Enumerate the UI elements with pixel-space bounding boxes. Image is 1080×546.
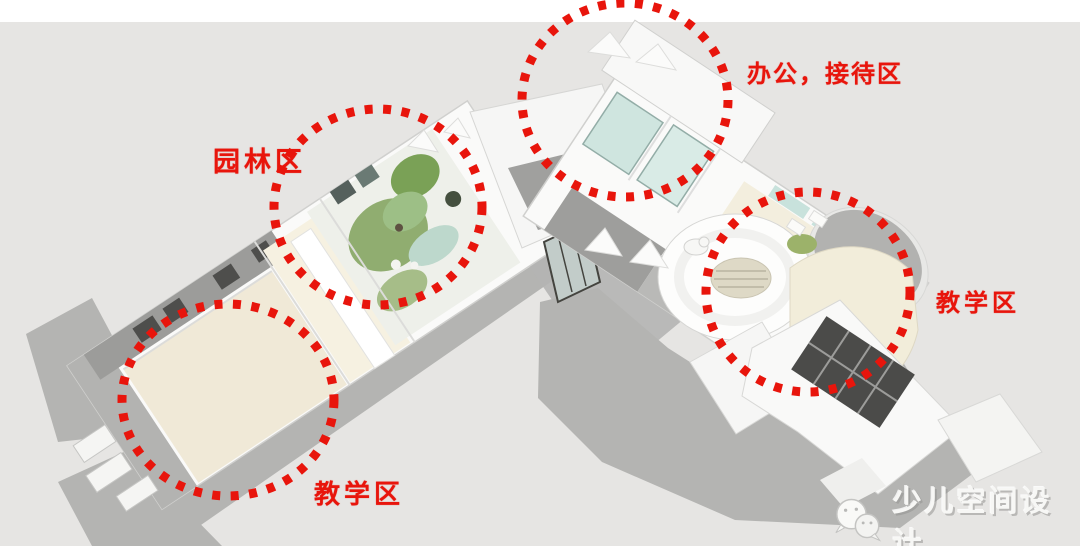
green-rug <box>787 234 817 254</box>
watermark-text: 少儿空间设计 <box>893 478 1080 546</box>
zone-label-garden: 园林区 <box>213 140 306 179</box>
zone-label-teaching-right: 教学区 <box>936 283 1020 318</box>
wechat-logo-icon <box>830 496 885 544</box>
watermark: 少儿空间设计 <box>830 478 1080 546</box>
zone-label-teaching-left: 教学区 <box>314 474 404 511</box>
round-classroom-donut <box>658 214 812 340</box>
donut-hole <box>711 258 771 298</box>
architectural-rendering: 园林区 办公，接待区 教学区 教学区 少儿空间设计 <box>0 0 1080 546</box>
zone-label-office-reception: 办公，接待区 <box>747 54 903 89</box>
building-plan-svg <box>0 0 1080 546</box>
